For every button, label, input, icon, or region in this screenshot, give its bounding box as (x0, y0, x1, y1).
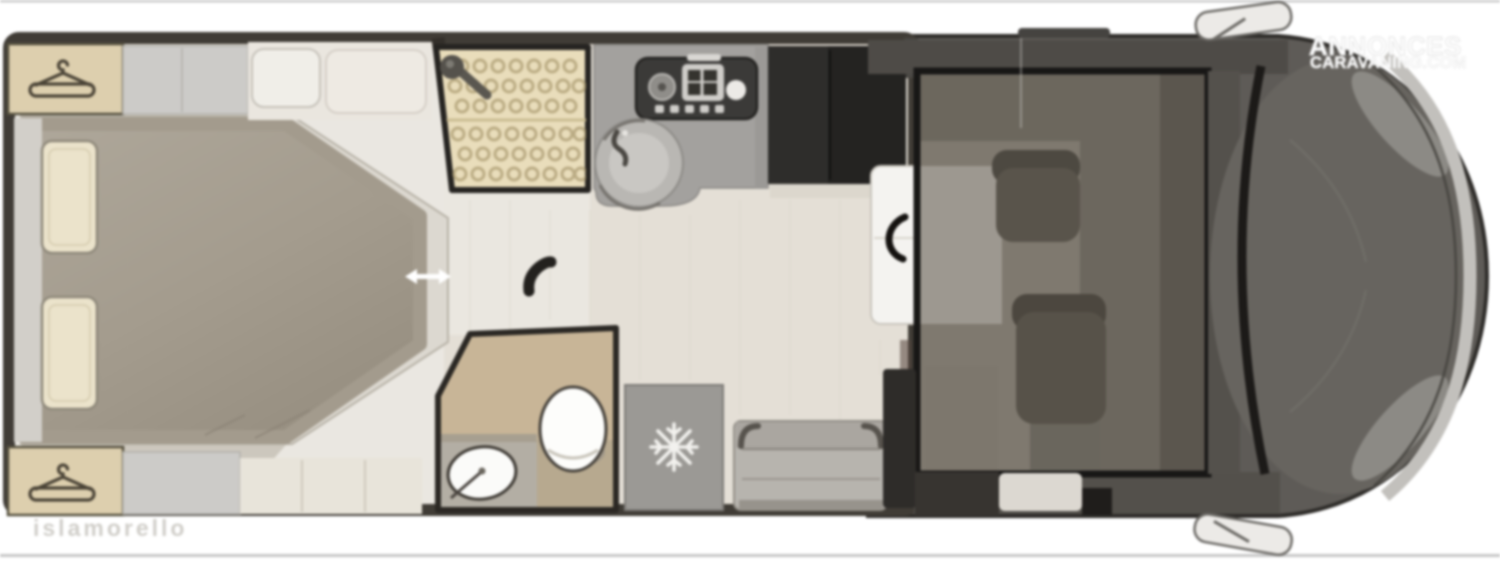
svg-text:islamorello: islamorello (33, 515, 187, 541)
svg-text:CARAVANING.COM: CARAVANING.COM (1310, 54, 1467, 72)
